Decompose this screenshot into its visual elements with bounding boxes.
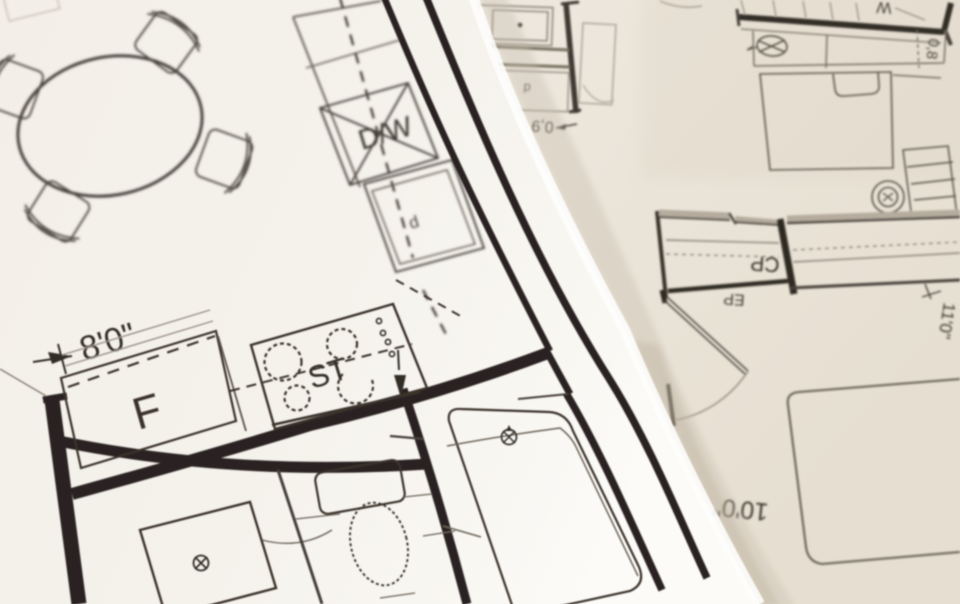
svg-text:0,8: 0,8 <box>922 38 941 61</box>
svg-text:EP: EP <box>723 290 745 308</box>
svg-text:W: W <box>875 0 892 16</box>
svg-text:CP: CP <box>750 251 781 276</box>
